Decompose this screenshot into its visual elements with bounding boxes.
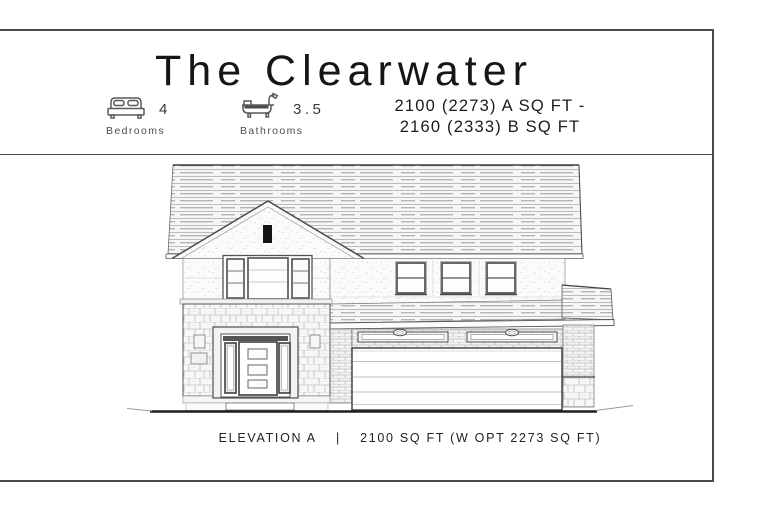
page-title: The Clearwater [0,47,688,96]
upper-window [485,262,517,295]
house-front-elevation-drawing [93,159,653,421]
garage-door [352,348,562,410]
bathrooms-count: 3.5 [293,101,324,118]
bedrooms-label: Bedrooms [106,125,171,137]
bathtub-icon [240,92,280,126]
upper-window [395,262,427,295]
caption-sqft: 2100 SQ FT (W OPT 2273 SQ FT) [360,431,601,445]
bathrooms-feature: 3.5 Bathrooms [240,95,324,137]
side-porch-roof [562,285,613,320]
triple-window [221,256,314,302]
caption-divider: | [336,431,341,445]
lintel-keystone [394,329,407,336]
upper-window [440,262,472,295]
door-transom [223,336,288,341]
address-block [191,353,207,364]
lintel-keystone [506,329,519,336]
attic-vent [263,225,272,243]
door-lite [248,380,267,388]
square-footage-line1: 2100 (2273) A SQ FT - [360,96,620,117]
bed-icon [106,93,146,126]
door-lite [248,349,267,359]
elevation-label: ELEVATION A [219,431,317,445]
door-lite [248,365,267,375]
square-footage: 2100 (2273) A SQ FT - 2160 (2333) B SQ F… [360,96,620,138]
porch-light-left [194,335,205,348]
front-step [226,403,294,410]
upper-windows [395,262,517,295]
elevation-caption: ELEVATION A | 2100 SQ FT (W OPT 2273 SQ … [100,431,720,445]
bedrooms-feature: 4 Bedrooms [106,95,171,137]
square-footage-line2: 2160 (2333) B SQ FT [360,117,620,138]
stone-ledge [180,299,332,304]
header-separator-line [0,154,714,155]
porch-light-right [310,335,320,348]
bedrooms-count: 4 [159,101,171,118]
bathrooms-label: Bathrooms [240,125,324,137]
